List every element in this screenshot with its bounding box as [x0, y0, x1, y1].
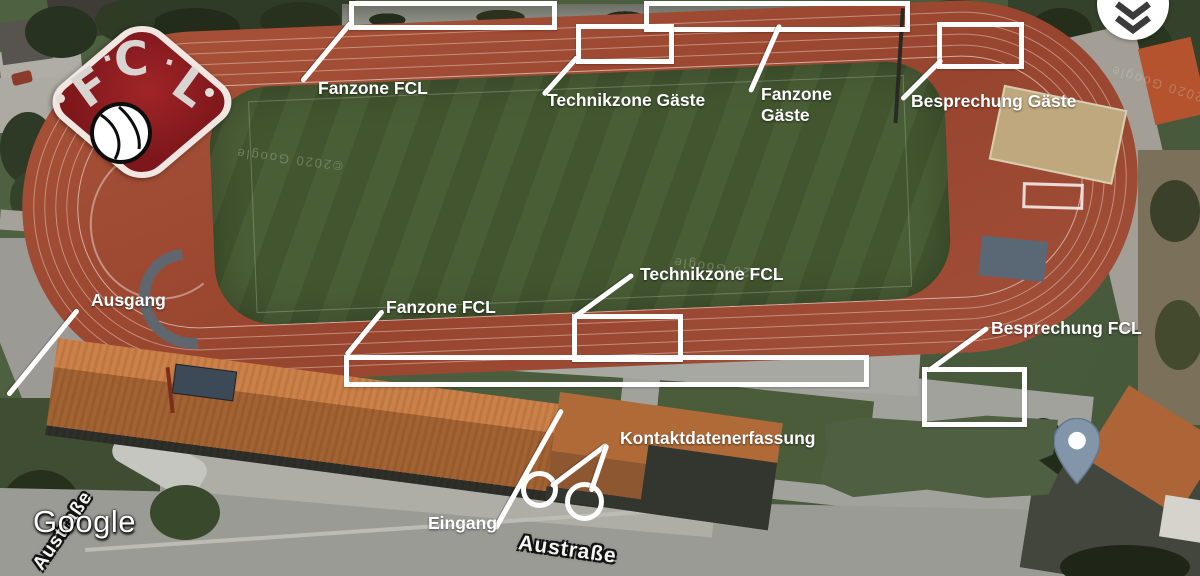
label-eingang: Eingang — [428, 513, 497, 534]
label-technikzone-gaeste: Technikzone Gäste — [547, 90, 705, 111]
label-fanzone-fcl-bottom: Fanzone FCL — [386, 297, 496, 318]
entrance-circle — [565, 482, 604, 521]
zone-box-fanzone-fcl-bottom — [344, 355, 869, 387]
logo-dot — [56, 94, 65, 103]
label-technikzone-fcl: Technikzone FCL — [640, 264, 784, 285]
zone-box-besprechung-fcl — [922, 367, 1027, 427]
label-fanzone-gaeste: Fanzone Gäste — [761, 84, 832, 125]
google-logo[interactable]: Google — [33, 504, 136, 540]
label-fanzone-fcl-top: Fanzone FCL — [318, 78, 428, 99]
label-besprechung-gaeste: Besprechung Gäste — [911, 91, 1076, 112]
zone-box-technikzone-gaeste — [576, 24, 674, 64]
label-besprechung-fcl: Besprechung FCL — [991, 318, 1142, 339]
white-structure — [1159, 495, 1200, 543]
map-pin-icon[interactable] — [1054, 418, 1100, 489]
double-chevron-down-icon — [1109, 0, 1157, 43]
trees — [1155, 300, 1200, 370]
logo-dot — [205, 88, 214, 97]
trees — [1150, 180, 1200, 242]
logo-letter-c: C — [113, 31, 150, 88]
label-kontaktdatenerfassung: Kontaktdatenerfassung — [620, 428, 815, 449]
bush — [150, 485, 220, 540]
goal-frame — [1022, 182, 1084, 210]
zone-box-besprechung-gaeste — [937, 22, 1024, 69]
fcl-club-logo: F · C · L — [42, 8, 232, 183]
blue-mat — [978, 235, 1048, 281]
zone-box-fanzone-fcl-top — [349, 1, 557, 30]
football-icon — [89, 101, 153, 165]
label-ausgang: Ausgang — [91, 290, 166, 311]
stadium-map: ©2020 Google ©2020 Google ©2020 Google F… — [0, 0, 1200, 576]
label-fanzone-gaeste-line2: Gäste — [761, 105, 832, 126]
label-fanzone-gaeste-line1: Fanzone — [761, 84, 832, 105]
